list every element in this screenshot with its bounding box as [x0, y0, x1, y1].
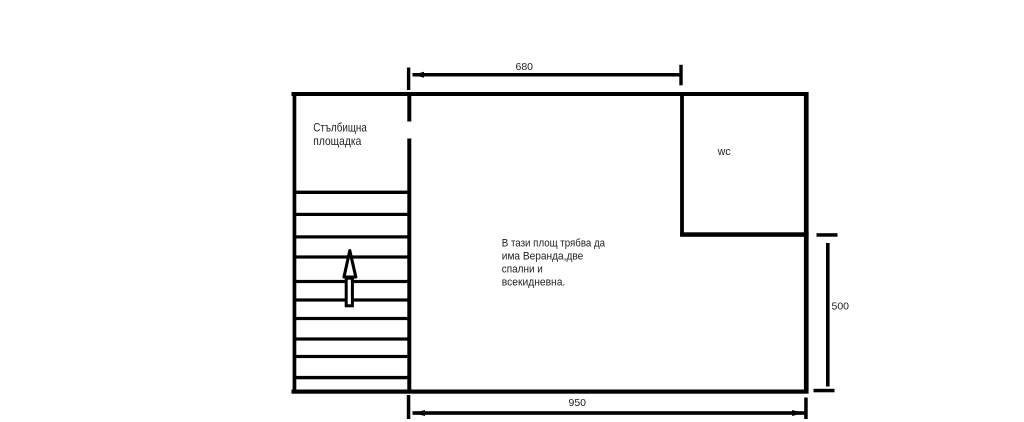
svg-text:В тази площ трябва да: В тази площ трябва да: [502, 237, 606, 249]
svg-text:всекидневна.: всекидневна.: [502, 277, 566, 289]
svg-text:спални и: спални и: [502, 264, 543, 276]
svg-text:площадка: площадка: [313, 134, 361, 148]
svg-text:wc: wc: [717, 146, 731, 158]
svg-text:680: 680: [516, 61, 534, 73]
svg-text:има Веранда,две: има Веранда,две: [502, 250, 584, 262]
svg-text:500: 500: [832, 301, 850, 313]
svg-text:950: 950: [569, 397, 587, 409]
svg-text:Стълбищна: Стълбищна: [313, 121, 367, 135]
